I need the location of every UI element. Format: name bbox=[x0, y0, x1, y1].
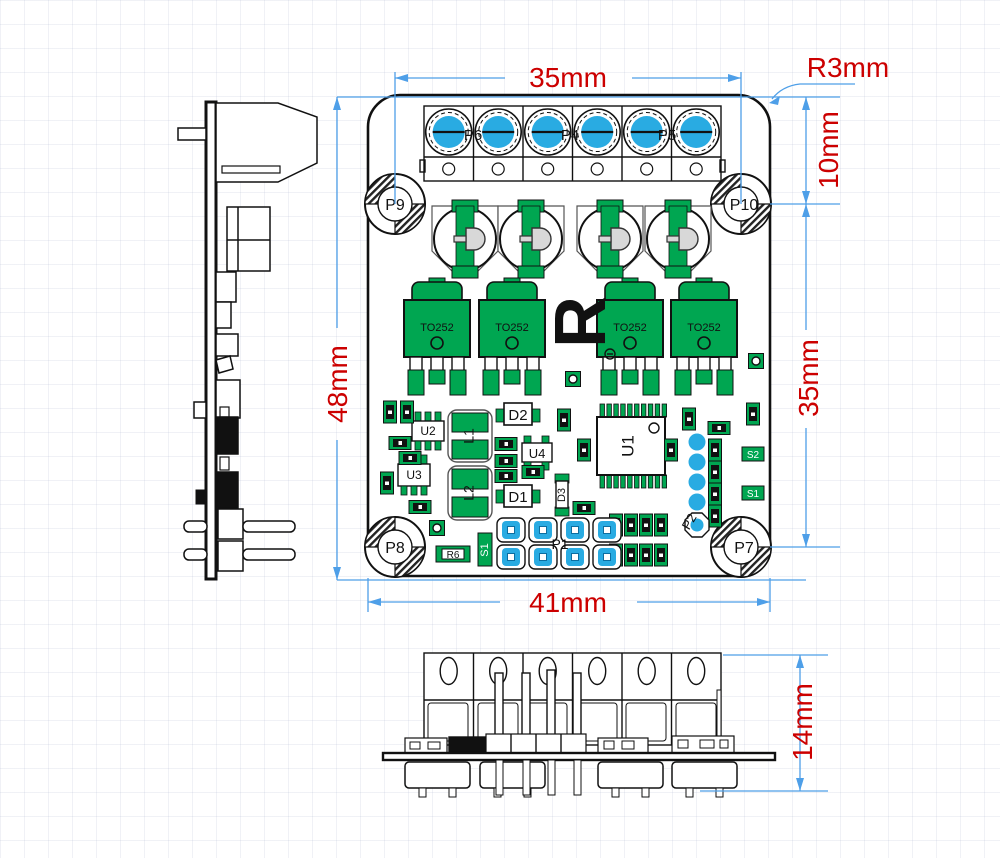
side-header-pin bbox=[243, 521, 295, 532]
test-point bbox=[566, 372, 581, 387]
inductor-l2: L2 bbox=[448, 466, 492, 520]
dim-left-height: 48mm bbox=[322, 345, 353, 423]
component-s2-right: S2 bbox=[742, 447, 764, 461]
side-top-pin bbox=[178, 128, 206, 140]
label-s1-left: S1 bbox=[479, 543, 491, 556]
dim-corner-radius: R3mm bbox=[807, 52, 889, 83]
dim-right-offset: 10mm bbox=[813, 111, 844, 189]
hole-label-p10: P10 bbox=[730, 197, 759, 214]
side-view bbox=[178, 102, 317, 579]
label-l1: L1 bbox=[461, 428, 477, 444]
terminal-label-p4: P4 bbox=[561, 127, 579, 144]
ic-u2: U2 bbox=[412, 412, 444, 450]
brand-logo: R bbox=[541, 296, 621, 348]
terminal-label-p5: P5 bbox=[658, 127, 676, 144]
to252-label: TO252 bbox=[420, 322, 453, 334]
top-view: P6 P4 P5 P9 P10 P8 P7 TO252 TO252 TO252 … bbox=[365, 95, 771, 577]
transistor-to252 bbox=[671, 278, 737, 395]
label-d2: D2 bbox=[508, 407, 527, 424]
dim-right-span: 35mm bbox=[793, 339, 824, 417]
dim-top-width: 35mm bbox=[529, 62, 607, 93]
inductor-l1: L1 bbox=[448, 410, 492, 462]
diode-d3: D3 bbox=[555, 474, 569, 516]
component-s1-right: S1 bbox=[742, 486, 764, 500]
component-s1-left: S1 bbox=[478, 533, 492, 566]
terminal-screw-side bbox=[440, 658, 457, 685]
hole-label-p7: P7 bbox=[734, 540, 754, 557]
test-point bbox=[749, 354, 764, 369]
bottom-capacitor bbox=[405, 762, 470, 788]
hole-label-p8: P8 bbox=[385, 540, 405, 557]
side-pcb-board bbox=[206, 102, 216, 579]
terminal-label-p6: P6 bbox=[464, 127, 482, 144]
side-connector-1 bbox=[217, 417, 238, 454]
label-u4: U4 bbox=[529, 446, 546, 461]
label-u2: U2 bbox=[420, 424, 436, 438]
to252-label: TO252 bbox=[687, 322, 720, 334]
test-point bbox=[430, 521, 445, 536]
to252-label: TO252 bbox=[495, 322, 528, 334]
bottom-pcb-board bbox=[383, 753, 775, 760]
label-u3: U3 bbox=[406, 468, 422, 482]
dim-side-height: 14mm bbox=[787, 683, 818, 761]
label-p1: P1 bbox=[551, 536, 568, 552]
side-connector-2 bbox=[217, 472, 238, 508]
side-capacitor bbox=[227, 207, 270, 271]
transistor-to252 bbox=[479, 278, 545, 395]
pcb-dimension-drawing: P6 P4 P5 P9 P10 P8 P7 TO252 TO252 TO252 … bbox=[0, 0, 1000, 858]
resistor-r6: R6 bbox=[436, 546, 470, 562]
label-l2: L2 bbox=[461, 485, 477, 501]
dim-bottom-width: 41mm bbox=[529, 587, 607, 618]
bottom-black-component bbox=[449, 737, 486, 753]
label-s2-right: S2 bbox=[747, 450, 760, 461]
label-d3: D3 bbox=[556, 488, 568, 502]
transistor-to252 bbox=[404, 278, 470, 395]
label-d1: D1 bbox=[508, 489, 527, 506]
side-header-housing bbox=[218, 509, 243, 539]
drawing-canvas: P6 P4 P5 P9 P10 P8 P7 TO252 TO252 TO252 … bbox=[0, 0, 1000, 858]
bottom-view bbox=[383, 653, 775, 797]
ic-u1: U1 bbox=[597, 404, 667, 488]
label-r6: R6 bbox=[447, 550, 460, 561]
label-s1-right: S1 bbox=[747, 489, 760, 500]
label-u1: U1 bbox=[618, 435, 637, 457]
